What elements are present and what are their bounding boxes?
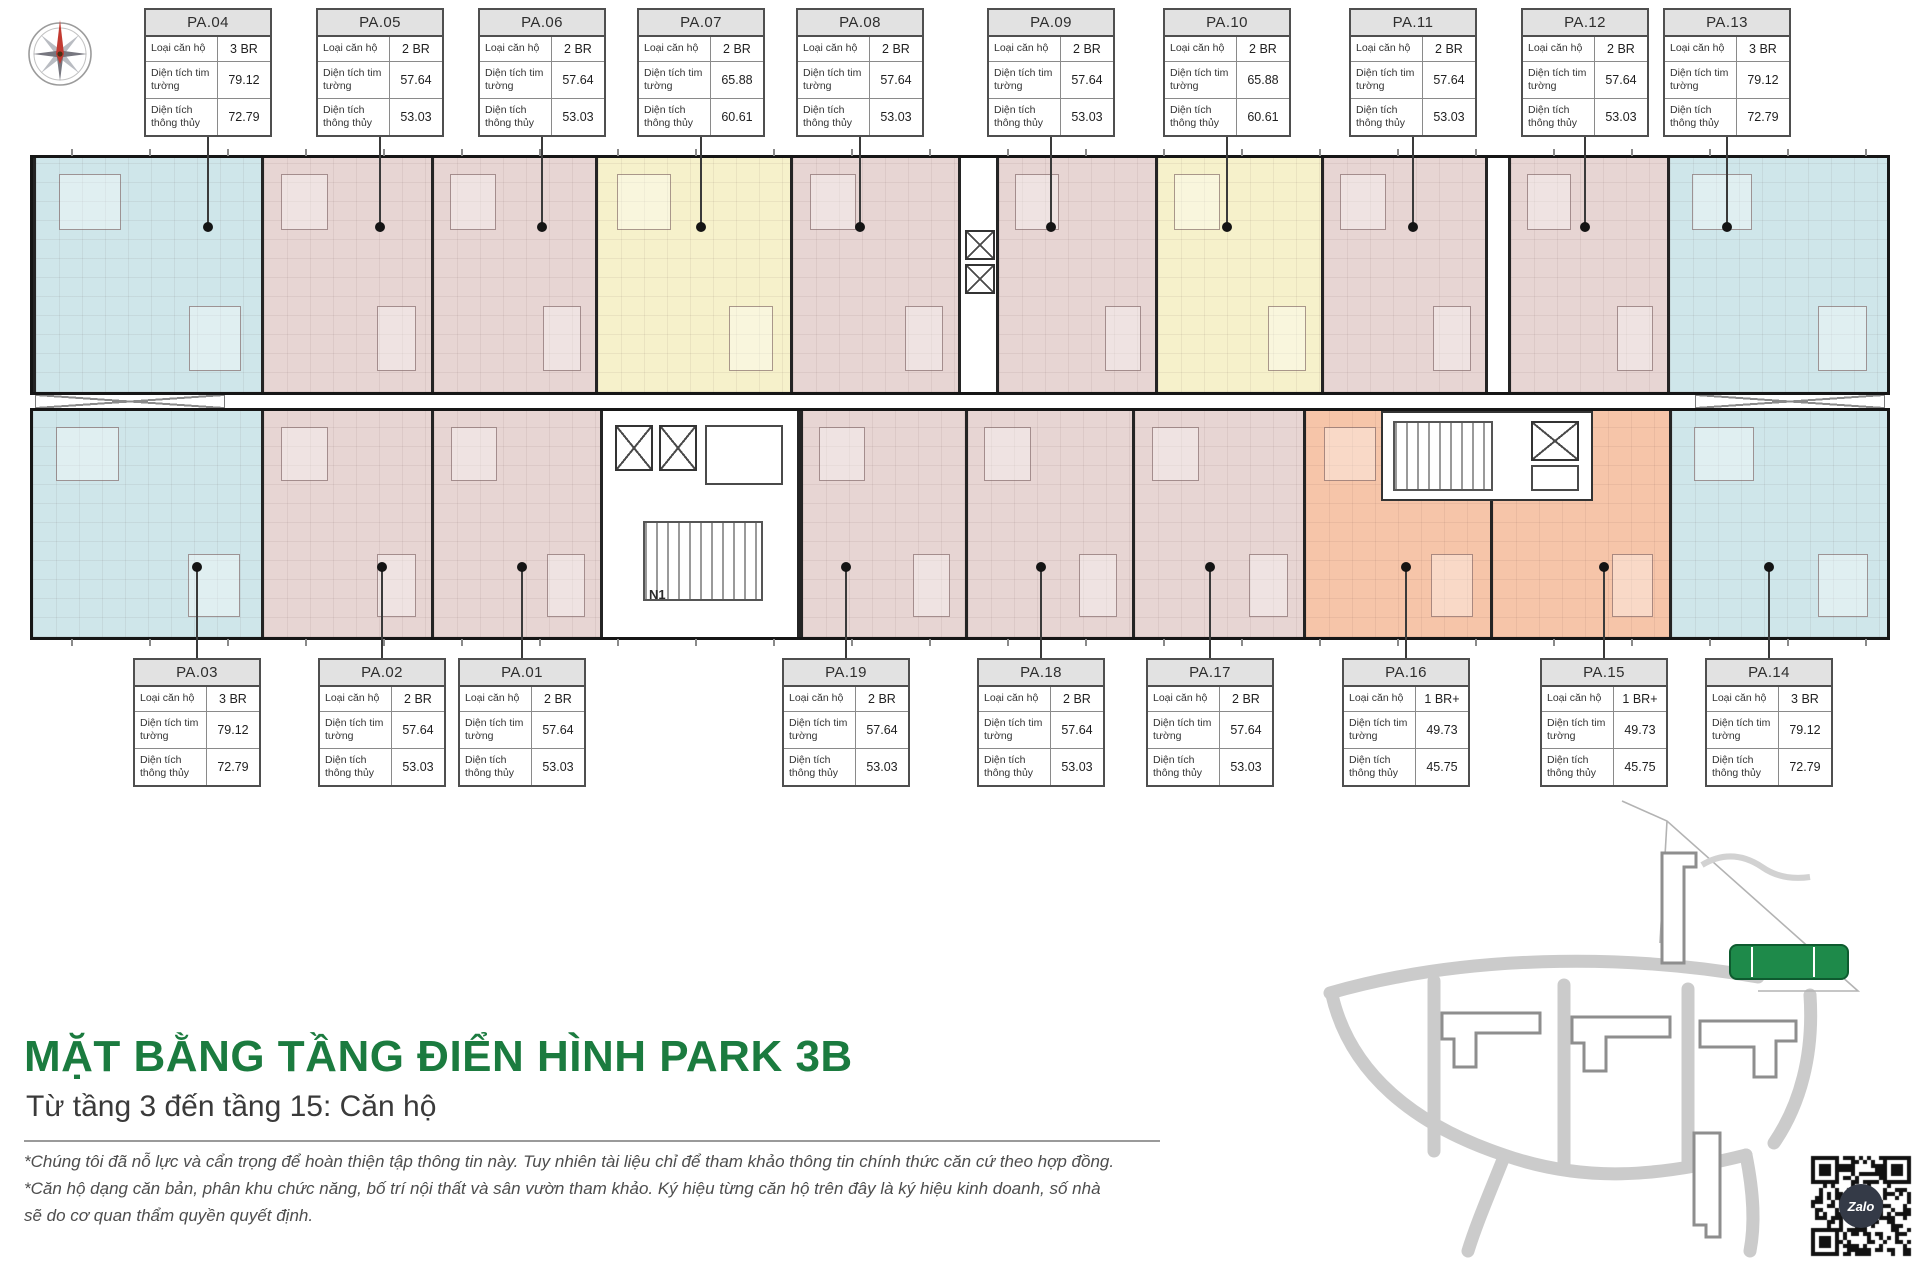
area-gross-value: 57.64 [532,712,584,748]
area-net-row: Diện tích thông thủy 60.61 [639,98,763,135]
table-pa-18: PA.18 Loại căn hộ 2 BR Diện tích tim tườ… [977,658,1105,787]
unit-type-value: 2 BR [552,37,604,61]
area-net-row: Diện tích thông thủy 53.03 [798,98,922,135]
area-net-value: 72.79 [1779,749,1831,785]
unit-type-label: Loại căn hộ [320,687,392,711]
unit-type-label: Loại căn hộ [1351,37,1423,61]
unit-pa-18 [965,411,1132,637]
callout-dot-pa-10 [1222,222,1232,232]
site-map-highlight-park3b [1730,945,1848,979]
area-gross-row: Diện tích tim tường 65.88 [639,61,763,98]
area-gross-label: Diện tích tim tường [318,62,390,98]
table-pa-16: PA.16 Loại căn hộ 1 BR+ Diện tích tim tư… [1342,658,1470,787]
area-gross-label: Diện tích tim tường [460,712,532,748]
unit-type-row: Loại căn hộ 2 BR [480,37,604,61]
unit-type-row: Loại căn hộ 2 BR [1165,37,1289,61]
unit-pa-12 [1508,158,1667,392]
area-gross-label: Diện tích tim tường [1344,712,1416,748]
area-gross-row: Diện tích tim tường 57.64 [460,711,584,748]
table-pa-13: PA.13 Loại căn hộ 3 BR Diện tích tim tườ… [1663,8,1791,137]
area-gross-label: Diện tích tim tường [979,712,1051,748]
unit-type-row: Loại căn hộ 3 BR [1665,37,1789,61]
unit-type-row: Loại căn hộ 2 BR [1148,687,1272,711]
area-net-value: 45.75 [1416,749,1468,785]
area-net-value: 72.79 [218,99,270,135]
area-net-value: 53.03 [1061,99,1113,135]
table-pa-02: PA.02 Loại căn hộ 2 BR Diện tích tim tườ… [318,658,446,787]
area-net-value: 53.03 [856,749,908,785]
area-net-value: 53.03 [1595,99,1647,135]
unit-type-value: 3 BR [207,687,259,711]
table-pa-14: PA.14 Loại căn hộ 3 BR Diện tích tim tườ… [1705,658,1833,787]
unit-pa-10 [1155,158,1321,392]
unit-type-row: Loại căn hộ 2 BR [639,37,763,61]
secondary-stair-core [1381,411,1593,501]
unit-pa-01 [431,411,600,637]
area-net-row: Diện tích thông thủy 60.61 [1165,98,1289,135]
building-wing-bottom: N1 [30,408,1890,640]
top-core-shaft [958,158,996,392]
callout-dot-pa-05 [375,222,385,232]
unit-type-label: Loại căn hộ [1344,687,1416,711]
unit-type-row: Loại căn hộ 2 BR [798,37,922,61]
callout-dot-pa-06 [537,222,547,232]
area-gross-row: Diện tích tim tường 49.73 [1542,711,1666,748]
callout-dot-pa-15 [1599,562,1609,572]
area-gross-row: Diện tích tim tường 65.88 [1165,61,1289,98]
callout-line-pa-09 [1050,131,1052,224]
balcony-ticks-bottom [33,639,1887,646]
area-net-label: Diện tích thông thủy [1351,99,1423,135]
unit-id: PA.01 [460,660,584,687]
area-net-row: Diện tích thông thủy 72.79 [146,98,270,135]
area-net-value: 53.03 [532,749,584,785]
area-gross-label: Diện tích tim tường [1148,712,1220,748]
area-net-value: 53.03 [870,99,922,135]
footnote-line-2: *Căn hộ dạng căn bản, phân khu chức năng… [24,1179,1101,1199]
area-net-row: Diện tích thông thủy 53.03 [979,748,1103,785]
unit-pa-04 [33,158,261,392]
area-net-row: Diện tích thông thủy 53.03 [1351,98,1475,135]
callout-dot-pa-19 [841,562,851,572]
area-gross-value: 57.64 [392,712,444,748]
area-gross-value: 57.64 [1220,712,1272,748]
area-net-value: 53.03 [1051,749,1103,785]
unit-type-value: 2 BR [1595,37,1647,61]
unit-id: PA.16 [1344,660,1468,687]
callout-dot-pa-08 [855,222,865,232]
table-pa-09: PA.09 Loại căn hộ 2 BR Diện tích tim tườ… [987,8,1115,137]
unit-id: PA.03 [135,660,259,687]
callout-dot-pa-13 [1722,222,1732,232]
area-gross-row: Diện tích tim tường 57.64 [784,711,908,748]
area-net-label: Diện tích thông thủy [639,99,711,135]
area-gross-label: Diện tích tim tường [639,62,711,98]
area-net-row: Diện tích thông thủy 53.03 [1148,748,1272,785]
callout-line-pa-19 [845,567,847,658]
unit-id: PA.10 [1165,10,1289,37]
area-net-label: Diện tích thông thủy [798,99,870,135]
zalo-logo: Zalo [1839,1184,1883,1228]
unit-pa-11 [1321,158,1485,392]
unit-type-value: 3 BR [1737,37,1789,61]
divider-line [24,1140,1160,1142]
area-net-row: Diện tích thông thủy 53.03 [318,98,442,135]
main-core: N1 [600,411,800,637]
footnote-line-3: sẽ do cơ quan thẩm quyền quyết định. [24,1206,313,1226]
elevator-shaft-icon [965,264,995,294]
area-gross-row: Diện tích tim tường 57.64 [320,711,444,748]
unit-id: PA.13 [1665,10,1789,37]
area-net-row: Diện tích thông thủy 53.03 [1523,98,1647,135]
area-gross-row: Diện tích tim tường 57.64 [480,61,604,98]
unit-id: PA.07 [639,10,763,37]
area-gross-value: 79.12 [207,712,259,748]
area-gross-label: Diện tích tim tường [135,712,207,748]
table-pa-10: PA.10 Loại căn hộ 2 BR Diện tích tim tườ… [1163,8,1291,137]
area-gross-value: 57.64 [1423,62,1475,98]
unit-type-row: Loại căn hộ 2 BR [989,37,1113,61]
unit-pa-03 [33,411,261,637]
unit-type-label: Loại căn hộ [989,37,1061,61]
area-net-value: 72.79 [1737,99,1789,135]
callout-line-pa-06 [541,131,543,224]
area-gross-label: Diện tích tim tường [320,712,392,748]
unit-type-value: 2 BR [390,37,442,61]
callout-line-pa-13 [1726,131,1728,224]
callout-dot-pa-04 [203,222,213,232]
unit-id: PA.11 [1351,10,1475,37]
table-pa-07: PA.07 Loại căn hộ 2 BR Diện tích tim tườ… [637,8,765,137]
unit-id: PA.02 [320,660,444,687]
area-gross-label: Diện tích tim tường [784,712,856,748]
unit-type-label: Loại căn hộ [460,687,532,711]
callout-line-pa-15 [1603,567,1605,658]
area-net-row: Diện tích thông thủy 45.75 [1344,748,1468,785]
callout-line-pa-12 [1584,131,1586,224]
callout-dot-pa-14 [1764,562,1774,572]
area-gross-value: 57.64 [390,62,442,98]
unit-type-value: 2 BR [1051,687,1103,711]
area-net-row: Diện tích thông thủy 72.79 [1707,748,1831,785]
corridor-bridge-left [35,394,225,409]
table-pa-01: PA.01 Loại căn hộ 2 BR Diện tích tim tườ… [458,658,586,787]
unit-pa-17 [1132,411,1303,637]
area-gross-value: 49.73 [1614,712,1666,748]
unit-type-value: 2 BR [392,687,444,711]
unit-type-value: 3 BR [218,37,270,61]
elevator-shaft-icon [965,230,995,260]
table-pa-11: PA.11 Loại căn hộ 2 BR Diện tích tim tườ… [1349,8,1477,137]
area-gross-label: Diện tích tim tường [1665,62,1737,98]
elevator-shaft-icon [1531,421,1579,461]
table-pa-17: PA.17 Loại căn hộ 2 BR Diện tích tim tườ… [1146,658,1274,787]
unit-pa-07 [595,158,790,392]
lift-lobby [705,425,783,485]
area-gross-row: Diện tích tim tường 79.12 [1665,61,1789,98]
unit-pa-19 [800,411,965,637]
area-gross-row: Diện tích tim tường 79.12 [135,711,259,748]
unit-type-value: 3 BR [1779,687,1831,711]
area-gross-row: Diện tích tim tường 79.12 [146,61,270,98]
area-gross-row: Diện tích tim tường 57.64 [1148,711,1272,748]
unit-type-label: Loại căn hộ [1542,687,1614,711]
area-net-row: Diện tích thông thủy 53.03 [989,98,1113,135]
callout-line-pa-16 [1405,567,1407,658]
area-gross-value: 79.12 [218,62,270,98]
unit-type-value: 1 BR+ [1614,687,1666,711]
unit-pa-14 [1669,411,1887,637]
unit-type-value: 2 BR [532,687,584,711]
unit-type-row: Loại căn hộ 2 BR [318,37,442,61]
site-map-building [1662,853,1696,963]
area-net-value: 53.03 [390,99,442,135]
unit-type-value: 2 BR [1220,687,1272,711]
callout-dot-pa-02 [377,562,387,572]
callout-dot-pa-18 [1036,562,1046,572]
area-gross-row: Diện tích tim tường 57.64 [1351,61,1475,98]
area-net-label: Diện tích thông thủy [135,749,207,785]
area-gross-row: Diện tích tim tường 79.12 [1707,711,1831,748]
area-gross-value: 57.64 [552,62,604,98]
unit-type-row: Loại căn hộ 2 BR [460,687,584,711]
area-net-value: 72.79 [207,749,259,785]
area-net-label: Diện tích thông thủy [318,99,390,135]
unit-type-label: Loại căn hộ [318,37,390,61]
area-net-label: Diện tích thông thủy [146,99,218,135]
area-gross-value: 49.73 [1416,712,1468,748]
area-net-label: Diện tích thông thủy [1344,749,1416,785]
table-pa-12: PA.12 Loại căn hộ 2 BR Diện tích tim tườ… [1521,8,1649,137]
unit-type-value: 2 BR [870,37,922,61]
unit-type-label: Loại căn hộ [784,687,856,711]
area-gross-label: Diện tích tim tường [1707,712,1779,748]
callout-dot-pa-12 [1580,222,1590,232]
site-map-building [1572,1017,1670,1071]
area-gross-value: 57.64 [870,62,922,98]
unit-type-value: 2 BR [1237,37,1289,61]
site-map-building [1442,1013,1540,1067]
callout-dot-pa-16 [1401,562,1411,572]
area-gross-row: Diện tích tim tường 57.64 [318,61,442,98]
area-gross-row: Diện tích tim tường 57.64 [798,61,922,98]
elevator-shaft-icon [659,425,697,471]
footnote-line-1: *Chúng tôi đã nỗ lực và cẩn trọng để hoà… [24,1152,1114,1172]
unit-id: PA.15 [1542,660,1666,687]
area-net-row: Diện tích thông thủy 45.75 [1542,748,1666,785]
area-gross-label: Diện tích tim tường [1523,62,1595,98]
unit-id: PA.17 [1148,660,1272,687]
area-gross-label: Diện tích tim tường [798,62,870,98]
area-net-label: Diện tích thông thủy [1707,749,1779,785]
area-net-label: Diện tích thông thủy [784,749,856,785]
table-pa-06: PA.06 Loại căn hộ 2 BR Diện tích tim tườ… [478,8,606,137]
unit-type-label: Loại căn hộ [480,37,552,61]
unit-type-row: Loại căn hộ 3 BR [146,37,270,61]
unit-type-row: Loại căn hộ 2 BR [1523,37,1647,61]
callout-dot-pa-09 [1046,222,1056,232]
callout-line-pa-03 [196,567,198,658]
callout-line-pa-18 [1040,567,1042,658]
area-gross-label: Diện tích tim tường [1165,62,1237,98]
building-wing-top [30,155,1890,395]
area-gross-value: 57.64 [856,712,908,748]
callout-line-pa-07 [700,131,702,224]
unit-id: PA.06 [480,10,604,37]
callout-line-pa-04 [207,131,209,224]
floorplan-page: N1 MẶT BẰNG TẦNG ĐIỂN HÌNH PARK 3B Từ tầ… [0,0,1920,1269]
area-gross-label: Diện tích tim tường [480,62,552,98]
area-gross-row: Diện tích tim tường 49.73 [1344,711,1468,748]
area-gross-label: Diện tích tim tường [1542,712,1614,748]
area-net-value: 45.75 [1614,749,1666,785]
unit-pa-02 [261,411,431,637]
area-gross-label: Diện tích tim tường [1351,62,1423,98]
unit-type-label: Loại căn hộ [1165,37,1237,61]
area-gross-value: 65.88 [711,62,763,98]
area-gross-value: 57.64 [1061,62,1113,98]
unit-type-row: Loại căn hộ 1 BR+ [1542,687,1666,711]
unit-pa-13 [1667,158,1887,392]
area-gross-value: 79.12 [1779,712,1831,748]
callout-line-pa-17 [1209,567,1211,658]
area-net-value: 53.03 [552,99,604,135]
site-map-building [1700,1021,1796,1077]
callout-dot-pa-17 [1205,562,1215,572]
unit-id: PA.12 [1523,10,1647,37]
unit-type-row: Loại căn hộ 2 BR [320,687,444,711]
area-net-row: Diện tích thông thủy 53.03 [460,748,584,785]
area-net-label: Diện tích thông thủy [480,99,552,135]
callout-line-pa-02 [381,567,383,658]
area-net-row: Diện tích thông thủy 53.03 [320,748,444,785]
unit-type-label: Loại căn hộ [1707,687,1779,711]
area-net-value: 53.03 [1220,749,1272,785]
balcony-ticks-top [33,149,1887,156]
area-gross-value: 79.12 [1737,62,1789,98]
area-gross-value: 65.88 [1237,62,1289,98]
area-net-label: Diện tích thông thủy [979,749,1051,785]
table-pa-15: PA.15 Loại căn hộ 1 BR+ Diện tích tim tư… [1540,658,1668,787]
unit-pa-08 [790,158,958,392]
callout-line-pa-05 [379,131,381,224]
unit-type-value: 2 BR [711,37,763,61]
unit-id: PA.08 [798,10,922,37]
area-net-label: Diện tích thông thủy [320,749,392,785]
area-gross-value: 57.64 [1595,62,1647,98]
area-net-label: Diện tích thông thủy [989,99,1061,135]
unit-type-label: Loại căn hộ [798,37,870,61]
compass-icon [18,12,102,96]
unit-id: PA.14 [1707,660,1831,687]
unit-type-row: Loại căn hộ 2 BR [979,687,1103,711]
unit-id: PA.09 [989,10,1113,37]
area-net-value: 53.03 [1423,99,1475,135]
area-net-label: Diện tích thông thủy [1523,99,1595,135]
area-net-row: Diện tích thông thủy 72.79 [135,748,259,785]
table-pa-03: PA.03 Loại căn hộ 3 BR Diện tích tim tườ… [133,658,261,787]
callout-dot-pa-03 [192,562,202,572]
core-label-n1: N1 [649,587,666,602]
callout-line-pa-01 [521,567,523,658]
unit-id: PA.19 [784,660,908,687]
callout-line-pa-10 [1226,131,1228,224]
lift-lobby [1531,465,1579,491]
stairs-icon [1393,421,1493,491]
unit-type-row: Loại căn hộ 2 BR [784,687,908,711]
area-net-row: Diện tích thông thủy 53.03 [784,748,908,785]
unit-id: PA.18 [979,660,1103,687]
area-gross-label: Diện tích tim tường [989,62,1061,98]
elevator-shaft-icon [615,425,653,471]
unit-pa-06 [431,158,595,392]
unit-type-label: Loại căn hộ [135,687,207,711]
unit-type-row: Loại căn hộ 3 BR [135,687,259,711]
area-net-value: 53.03 [392,749,444,785]
table-pa-19: PA.19 Loại căn hộ 2 BR Diện tích tim tườ… [782,658,910,787]
unit-id: PA.05 [318,10,442,37]
callout-dot-pa-01 [517,562,527,572]
area-gross-value: 57.64 [1051,712,1103,748]
unit-type-value: 1 BR+ [1416,687,1468,711]
callout-dot-pa-11 [1408,222,1418,232]
table-pa-05: PA.05 Loại căn hộ 2 BR Diện tích tim tườ… [316,8,444,137]
unit-pa-09 [996,158,1155,392]
unit-type-value: 2 BR [856,687,908,711]
area-net-label: Diện tích thông thủy [1165,99,1237,135]
unit-type-label: Loại căn hộ [146,37,218,61]
area-gross-row: Diện tích tim tường 57.64 [979,711,1103,748]
callout-line-pa-08 [859,131,861,224]
unit-type-label: Loại căn hộ [1523,37,1595,61]
zalo-qr-code: Zalo [1805,1150,1917,1262]
unit-type-label: Loại căn hộ [979,687,1051,711]
area-net-value: 60.61 [711,99,763,135]
site-map-building [1694,1133,1720,1237]
page-subtitle: Từ tầng 3 đến tầng 15: Căn hộ [26,1090,436,1124]
table-pa-04: PA.04 Loại căn hộ 3 BR Diện tích tim tườ… [144,8,272,137]
top-core-shaft-2 [1485,158,1508,392]
area-net-label: Diện tích thông thủy [460,749,532,785]
unit-type-label: Loại căn hộ [1665,37,1737,61]
unit-type-row: Loại căn hộ 2 BR [1351,37,1475,61]
area-net-label: Diện tích thông thủy [1665,99,1737,135]
unit-id: PA.04 [146,10,270,37]
callout-line-pa-11 [1412,131,1414,224]
area-gross-row: Diện tích tim tường 57.64 [1523,61,1647,98]
unit-type-label: Loại căn hộ [1148,687,1220,711]
table-pa-08: PA.08 Loại căn hộ 2 BR Diện tích tim tườ… [796,8,924,137]
area-net-label: Diện tích thông thủy [1148,749,1220,785]
callout-line-pa-14 [1768,567,1770,658]
site-map [1322,795,1888,1260]
unit-type-value: 2 BR [1423,37,1475,61]
unit-pa-05 [261,158,431,392]
unit-type-row: Loại căn hộ 1 BR+ [1344,687,1468,711]
unit-type-label: Loại căn hộ [639,37,711,61]
corridor-bridge-right [1695,394,1885,409]
unit-type-value: 2 BR [1061,37,1113,61]
area-net-label: Diện tích thông thủy [1542,749,1614,785]
page-title: MẶT BẰNG TẦNG ĐIỂN HÌNH PARK 3B [24,1032,853,1082]
unit-type-row: Loại căn hộ 3 BR [1707,687,1831,711]
callout-dot-pa-07 [696,222,706,232]
area-net-row: Diện tích thông thủy 72.79 [1665,98,1789,135]
area-gross-row: Diện tích tim tường 57.64 [989,61,1113,98]
area-gross-label: Diện tích tim tường [146,62,218,98]
area-net-value: 60.61 [1237,99,1289,135]
area-net-row: Diện tích thông thủy 53.03 [480,98,604,135]
